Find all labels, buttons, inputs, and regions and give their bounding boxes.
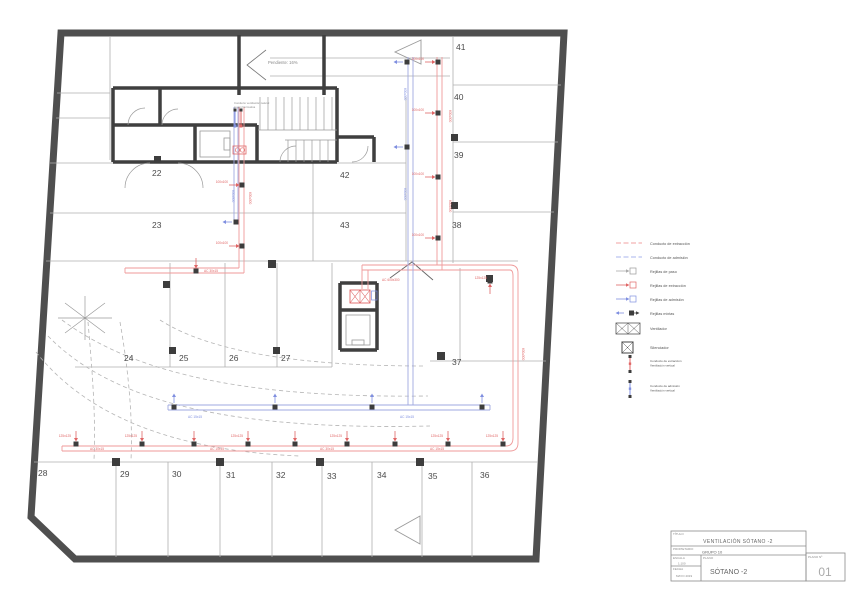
legend-label: Conducto de admisión — [650, 384, 680, 388]
duct-size-label: AC 15x15 — [210, 447, 224, 451]
duct-size-label: 600x300 — [248, 192, 252, 204]
legend-admission-riser-icon — [629, 380, 632, 398]
duct-size-label: AC 30x15 — [320, 447, 334, 451]
space-31: 31 — [226, 470, 236, 480]
sheet-number-label: PLANO Nº — [808, 555, 823, 559]
space-27: 27 — [281, 353, 291, 363]
duct-size-label: 100x100 — [412, 172, 424, 176]
space-26: 26 — [229, 353, 239, 363]
duct-size-label: 600x300 — [521, 348, 525, 360]
space-34: 34 — [377, 470, 387, 480]
duct-size-label: 125x125 — [59, 434, 71, 438]
duct-size-label: 100x100 — [412, 57, 424, 61]
duct-size-label: 125x125 — [431, 434, 443, 438]
legend-label: Rejillas de paso — [650, 270, 677, 274]
space-38: 38 — [452, 220, 462, 230]
duct-size-label: 125x125 — [330, 434, 342, 438]
duct-size-label: 125x125 — [231, 434, 243, 438]
legend-label: Conducto de extracción — [650, 359, 682, 363]
column — [268, 260, 276, 268]
duct-size-label: 600x300 — [231, 190, 235, 202]
duct-size-label: AC 15x15 — [430, 447, 444, 451]
shaft-note-line2: según Normativa — [234, 105, 256, 109]
space-42: 42 — [340, 170, 350, 180]
legend-label: Silenciador — [650, 346, 670, 350]
duct-size-label: AC 600x300 — [382, 278, 400, 282]
date-label: FECHA — [673, 567, 683, 571]
column — [169, 347, 176, 354]
column — [437, 352, 445, 360]
date-value: MAYO 2019 — [676, 574, 692, 578]
owner-value: GRUPO 10 — [702, 550, 723, 555]
space-32: 32 — [276, 470, 286, 480]
space-24: 24 — [124, 353, 134, 363]
space-39: 39 — [454, 150, 464, 160]
duct-size-label: AC 15x15 — [188, 415, 202, 419]
space-22: 22 — [152, 168, 162, 178]
legend-label: Conducto de extracción — [650, 242, 690, 246]
duct-size-label: 100x100 — [216, 241, 228, 245]
column — [316, 458, 324, 466]
paper-background — [0, 0, 848, 600]
sheet-label: PLANO — [703, 556, 714, 560]
duct-size-label: AC 15x15 — [400, 415, 414, 419]
column — [112, 458, 120, 466]
ramp-slope-label: Pendiente: 16% — [268, 60, 298, 65]
legend-label: Rejillas de admisión — [650, 298, 684, 302]
legend-label: Conducto de admisión — [650, 256, 688, 260]
legend-label: Rejillas mixtas — [650, 312, 674, 316]
space-29: 29 — [120, 469, 130, 479]
sheet-name: SÓTANO -2 — [710, 567, 747, 576]
duct-size-label: 600x300 — [448, 110, 452, 122]
column — [273, 347, 280, 354]
space-43: 43 — [340, 220, 350, 230]
space-30: 30 — [172, 469, 182, 479]
space-28: 28 — [38, 468, 48, 478]
duct-size-label: 600x300 — [448, 200, 452, 212]
space-41: 41 — [456, 42, 466, 52]
riser-node — [240, 125, 243, 128]
duct-size-label: AC 30x15 — [204, 269, 218, 273]
title-label: TÍTULO — [673, 532, 684, 536]
column — [451, 134, 458, 141]
duct-size-label: 600x300 — [403, 188, 407, 200]
legend-label: Ventilación vertical — [650, 389, 675, 393]
floorplan-canvas: Pendiente: 16% — [0, 0, 848, 600]
column — [216, 458, 224, 466]
duct-size-label: 100x100 — [412, 233, 424, 237]
column — [154, 156, 161, 163]
legend-extraction-riser-icon — [629, 355, 632, 373]
space-36: 36 — [480, 470, 490, 480]
space-25: 25 — [179, 353, 189, 363]
drawing-title: VENTILACIÓN SÓTANO -2 — [703, 538, 773, 545]
space-33: 33 — [327, 471, 337, 481]
legend-label: Rejillas de extracción — [650, 284, 686, 288]
sheet-number: 01 — [818, 565, 832, 579]
scale-value: 1:100 — [678, 562, 686, 566]
duct-size-label: 125x125 — [475, 276, 487, 280]
column — [163, 281, 170, 288]
duct-size-label: 600x300 — [403, 88, 407, 100]
legend-label: Ventilación vertical — [650, 364, 675, 368]
duct-size-label: 125x125 — [125, 434, 137, 438]
space-40: 40 — [454, 92, 464, 102]
scale-label: ESCALA — [673, 556, 685, 560]
space-35: 35 — [428, 471, 438, 481]
legend-label: Ventilador — [650, 327, 668, 331]
duct-size-label: 100x100 — [216, 180, 228, 184]
riser-node — [234, 125, 237, 128]
duct-size-label: 100x100 — [412, 108, 424, 112]
owner-label: PROPIETARIO — [673, 547, 694, 551]
space-23: 23 — [152, 220, 162, 230]
column — [416, 458, 424, 466]
space-37: 37 — [452, 357, 462, 367]
duct-size-label: AC 30x15 — [90, 447, 104, 451]
duct-size-label: 125x125 — [486, 434, 498, 438]
